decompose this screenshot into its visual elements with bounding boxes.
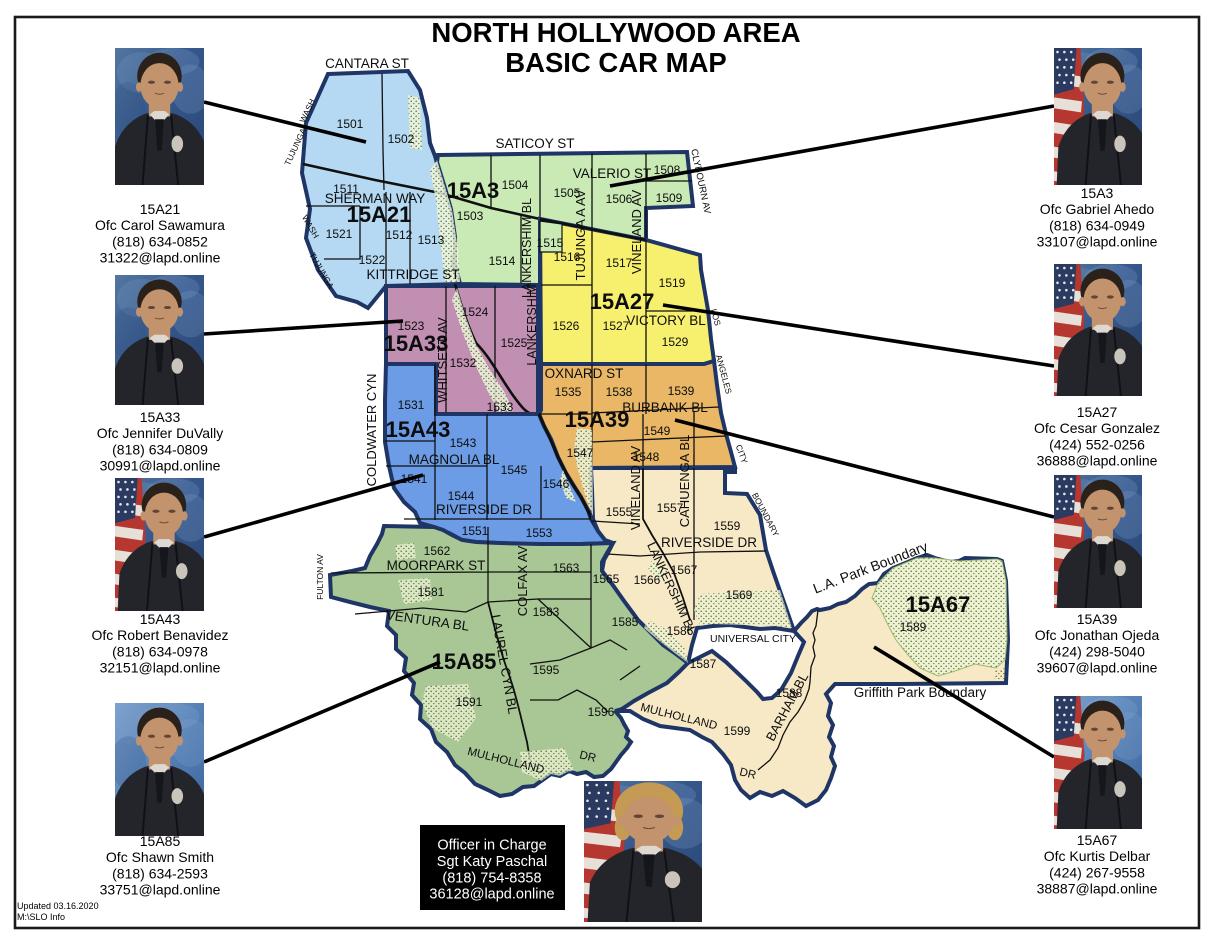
svg-text:Griffith Park Boundary: Griffith Park Boundary (854, 685, 987, 700)
svg-text:(818) 634-2593: (818) 634-2593 (112, 865, 208, 881)
svg-text:1583: 1583 (533, 605, 560, 619)
svg-text:15A21: 15A21 (140, 201, 181, 217)
svg-text:1588: 1588 (776, 686, 803, 700)
svg-text:1591: 1591 (456, 695, 483, 709)
svg-text:1557: 1557 (657, 501, 684, 515)
svg-text:Sgt Katy Paschal: Sgt Katy Paschal (437, 854, 547, 870)
svg-text:1515: 1515 (537, 236, 564, 250)
svg-text:1526: 1526 (553, 319, 580, 333)
svg-text:1525: 1525 (501, 336, 528, 350)
svg-text:1549: 1549 (644, 424, 671, 438)
svg-text:1527: 1527 (603, 319, 630, 333)
svg-text:1539: 1539 (668, 384, 695, 398)
svg-text:15A43: 15A43 (386, 417, 451, 442)
svg-text:Ofc Jennifer DuVally: Ofc Jennifer DuVally (97, 425, 224, 441)
svg-text:1586: 1586 (667, 624, 694, 638)
svg-text:15A43: 15A43 (140, 611, 181, 627)
svg-text:15A33: 15A33 (140, 409, 181, 425)
svg-text:1511: 1511 (333, 182, 359, 196)
svg-text:1535: 1535 (555, 385, 582, 399)
svg-text:1589: 1589 (900, 620, 927, 634)
svg-text:1565: 1565 (593, 572, 620, 586)
svg-text:1563: 1563 (553, 561, 580, 575)
svg-text:Ofc Robert Benavidez: Ofc Robert Benavidez (92, 627, 229, 643)
svg-text:Ofc Kurtis Delbar: Ofc Kurtis Delbar (1044, 848, 1151, 864)
svg-text:1503: 1503 (457, 209, 484, 223)
svg-text:1524: 1524 (462, 305, 489, 319)
svg-text:(424) 552-0256: (424) 552-0256 (1049, 436, 1145, 452)
svg-text:1529: 1529 (662, 335, 689, 349)
svg-text:BASIC CAR MAP: BASIC CAR MAP (505, 47, 727, 78)
svg-text:OXNARD ST: OXNARD ST (545, 366, 624, 381)
svg-text:30991@lapd.online: 30991@lapd.online (100, 458, 221, 474)
svg-text:1506: 1506 (606, 192, 633, 206)
svg-text:VICTORY BL: VICTORY BL (626, 313, 706, 328)
svg-text:1546: 1546 (543, 477, 570, 491)
svg-text:CANTARA ST: CANTARA ST (325, 56, 409, 71)
svg-text:Ofc Shawn Smith: Ofc Shawn Smith (106, 849, 214, 865)
svg-text:15A85: 15A85 (432, 649, 497, 674)
svg-text:1544: 1544 (448, 489, 475, 503)
svg-text:VALERIO ST: VALERIO ST (573, 166, 652, 181)
svg-text:1569: 1569 (726, 588, 753, 602)
svg-text:Ofc Gabriel Ahedo: Ofc Gabriel Ahedo (1040, 201, 1155, 217)
svg-text:(818) 634-0949: (818) 634-0949 (1049, 217, 1145, 233)
svg-text:BURBANK BL: BURBANK BL (622, 400, 708, 415)
svg-text:(424) 298-5040: (424) 298-5040 (1049, 643, 1145, 659)
svg-text:1502: 1502 (388, 132, 415, 146)
svg-text:1596: 1596 (588, 705, 615, 719)
svg-text:(818) 634-0809: (818) 634-0809 (112, 441, 208, 457)
svg-text:1513: 1513 (418, 233, 445, 247)
svg-text:1548: 1548 (633, 450, 660, 464)
svg-text:15A85: 15A85 (140, 833, 181, 849)
svg-text:1567: 1567 (671, 563, 698, 577)
svg-text:1587: 1587 (690, 657, 717, 671)
svg-text:1543: 1543 (450, 436, 477, 450)
svg-text:1547: 1547 (567, 446, 594, 460)
svg-text:1555: 1555 (606, 505, 633, 519)
svg-text:WHITSETT AV: WHITSETT AV (435, 317, 450, 403)
svg-text:(818) 754-8358: (818) 754-8358 (442, 870, 541, 886)
svg-text:15A27: 15A27 (590, 289, 655, 314)
svg-text:33107@lapd.online: 33107@lapd.online (1037, 234, 1158, 250)
svg-text:FULTON AV: FULTON AV (315, 554, 325, 600)
svg-text:1512: 1512 (386, 228, 413, 242)
svg-text:1533: 1533 (487, 400, 514, 414)
svg-text:(818) 634-0852: (818) 634-0852 (112, 233, 208, 249)
svg-text:1531: 1531 (398, 398, 425, 412)
svg-text:1519: 1519 (659, 276, 686, 290)
svg-text:1505: 1505 (554, 186, 581, 200)
svg-text:COLFAX AV: COLFAX AV (515, 545, 530, 616)
svg-text:COLDWATER CYN: COLDWATER CYN (364, 374, 379, 487)
svg-text:Updated 03.16.2020: Updated 03.16.2020 (17, 901, 99, 911)
svg-text:LANKERSHIM: LANKERSHIM (525, 284, 539, 365)
svg-text:MAGNOLIA BL: MAGNOLIA BL (409, 452, 500, 467)
svg-text:Officer in Charge: Officer in Charge (437, 838, 546, 854)
svg-text:39607@lapd.online: 39607@lapd.online (1037, 660, 1158, 676)
svg-text:15A67: 15A67 (1077, 832, 1118, 848)
svg-text:1551: 1551 (462, 524, 489, 538)
svg-text:32151@lapd.online: 32151@lapd.online (100, 660, 221, 676)
svg-text:NORTH HOLLYWOOD AREA: NORTH HOLLYWOOD AREA (431, 17, 800, 48)
svg-text:MOORPARK ST: MOORPARK ST (387, 558, 486, 573)
svg-text:(424) 267-9558: (424) 267-9558 (1049, 864, 1145, 880)
svg-text:1514: 1514 (489, 254, 516, 268)
svg-text:1585: 1585 (612, 615, 639, 629)
svg-text:1566: 1566 (634, 573, 661, 587)
svg-text:15A21: 15A21 (347, 202, 412, 227)
svg-text:1501: 1501 (337, 117, 364, 131)
svg-text:15A67: 15A67 (906, 592, 971, 617)
svg-text:SATICOY ST: SATICOY ST (495, 136, 574, 151)
svg-text:1504: 1504 (502, 178, 529, 192)
svg-text:Ofc Cesar Gonzalez: Ofc Cesar Gonzalez (1034, 420, 1160, 436)
svg-text:UNIVERSAL CITY: UNIVERSAL CITY (710, 633, 796, 645)
svg-text:1509: 1509 (656, 191, 683, 205)
svg-text:1595: 1595 (533, 663, 560, 677)
svg-text:1532: 1532 (450, 356, 477, 370)
svg-text:1545: 1545 (501, 463, 528, 477)
svg-text:1521: 1521 (326, 227, 353, 241)
svg-text:36888@lapd.online: 36888@lapd.online (1037, 453, 1158, 469)
svg-text:1581: 1581 (418, 585, 445, 599)
svg-text:(818) 634-0978: (818) 634-0978 (112, 643, 208, 659)
svg-text:15A33: 15A33 (384, 331, 449, 356)
svg-text:1516: 1516 (554, 250, 581, 264)
svg-text:1559: 1559 (714, 519, 741, 533)
svg-text:KITTRIDGE ST: KITTRIDGE ST (366, 267, 459, 282)
svg-text:1522: 1522 (359, 253, 386, 267)
svg-text:31322@lapd.online: 31322@lapd.online (100, 250, 221, 266)
svg-text:RIVERSIDE DR: RIVERSIDE DR (436, 502, 532, 517)
svg-text:1599: 1599 (724, 724, 751, 738)
svg-text:15A39: 15A39 (1077, 611, 1118, 627)
svg-text:TUJUNGA A AV: TUJUNGA A AV (573, 189, 588, 280)
svg-text:RIVERSIDE DR: RIVERSIDE DR (661, 535, 757, 550)
svg-text:1538: 1538 (606, 385, 633, 399)
svg-text:15A39: 15A39 (565, 407, 630, 432)
svg-text:38887@lapd.online: 38887@lapd.online (1037, 881, 1158, 897)
svg-text:1517: 1517 (606, 256, 633, 270)
svg-text:LANKERSHIM BL: LANKERSHIM BL (520, 198, 534, 298)
svg-text:36128@lapd.online: 36128@lapd.online (429, 887, 554, 903)
svg-text:1562: 1562 (424, 544, 451, 558)
svg-text:15A27: 15A27 (1077, 404, 1118, 420)
svg-text:15A3: 15A3 (447, 178, 500, 203)
svg-text:M:\SLO Info: M:\SLO Info (17, 912, 65, 922)
svg-text:Ofc Jonathan Ojeda: Ofc Jonathan Ojeda (1035, 627, 1160, 643)
svg-text:1553: 1553 (526, 526, 553, 540)
svg-text:33751@lapd.online: 33751@lapd.online (100, 882, 221, 898)
svg-text:15A3: 15A3 (1081, 185, 1114, 201)
svg-text:Ofc Carol Sawamura: Ofc Carol Sawamura (95, 217, 225, 233)
